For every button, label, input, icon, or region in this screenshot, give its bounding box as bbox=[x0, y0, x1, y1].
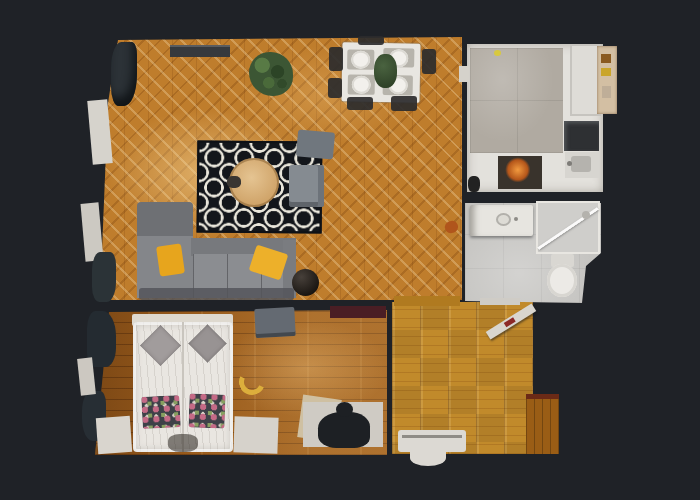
floor-bag bbox=[292, 269, 319, 296]
plate-1 bbox=[351, 50, 370, 68]
dining-chair-5 bbox=[391, 96, 417, 111]
dining-chair-6 bbox=[358, 36, 384, 45]
bed-center-seam bbox=[182, 322, 184, 452]
sink-faucet bbox=[567, 161, 572, 166]
radiator-bump bbox=[410, 450, 446, 466]
kitchen-door-jamb bbox=[459, 66, 469, 82]
dining-chair-4 bbox=[347, 97, 373, 110]
sofa-chaise-back bbox=[137, 202, 193, 240]
shelf-item-1 bbox=[601, 54, 611, 63]
room-alcove-floor bbox=[526, 397, 559, 454]
table-plant bbox=[374, 54, 397, 88]
side-chair bbox=[296, 129, 335, 159]
radiator bbox=[398, 430, 466, 452]
clothes-rail bbox=[330, 306, 386, 318]
kitchen-sink bbox=[565, 152, 599, 178]
placemat-3 bbox=[348, 74, 375, 94]
oven-range bbox=[498, 156, 542, 189]
bathroom-step bbox=[480, 298, 520, 305]
cooktop bbox=[564, 121, 599, 151]
kitchen-shelf bbox=[597, 46, 617, 114]
floorplan-scene bbox=[0, 0, 700, 500]
white-rug-right bbox=[233, 416, 278, 454]
shower-drain bbox=[582, 211, 590, 219]
dining-chair-1 bbox=[329, 47, 343, 71]
curtain-top-left bbox=[111, 42, 137, 106]
sink-basin bbox=[571, 156, 591, 172]
room-kitchen-floor bbox=[470, 48, 563, 153]
potted-plant bbox=[249, 52, 293, 96]
radiator-line bbox=[402, 435, 462, 438]
floral-pillow-1 bbox=[141, 395, 181, 429]
toilet bbox=[547, 264, 577, 297]
vanity-tap bbox=[514, 217, 518, 221]
dining-chair-3 bbox=[422, 49, 436, 74]
shelf-item-3 bbox=[602, 86, 611, 98]
bedroom-bench bbox=[254, 307, 295, 338]
kitchen-small-object bbox=[494, 50, 501, 56]
bath-vanity bbox=[470, 205, 533, 236]
yellow-pillow-1 bbox=[156, 243, 185, 276]
sofa-shadow bbox=[139, 288, 294, 300]
window-bar bbox=[170, 45, 230, 57]
placemat-1 bbox=[347, 49, 374, 69]
white-rug-left bbox=[96, 416, 132, 454]
scan-shadow-head bbox=[336, 402, 353, 417]
alcove-threshold bbox=[526, 394, 559, 399]
kitchen-dark-object bbox=[468, 176, 480, 192]
bed-foot-shadow bbox=[168, 434, 198, 452]
dining-chair-2 bbox=[328, 78, 342, 98]
scan-shadow-body bbox=[318, 412, 370, 448]
shower-enclosure bbox=[536, 201, 600, 254]
doorway-threshold bbox=[394, 296, 460, 306]
floral-pillow-2 bbox=[188, 393, 225, 428]
coffee-table-object bbox=[227, 176, 241, 188]
shelf-item-2 bbox=[601, 68, 611, 76]
curtain-lower-left bbox=[92, 252, 116, 302]
plate-3 bbox=[352, 75, 371, 93]
vanity-basin bbox=[496, 213, 511, 226]
